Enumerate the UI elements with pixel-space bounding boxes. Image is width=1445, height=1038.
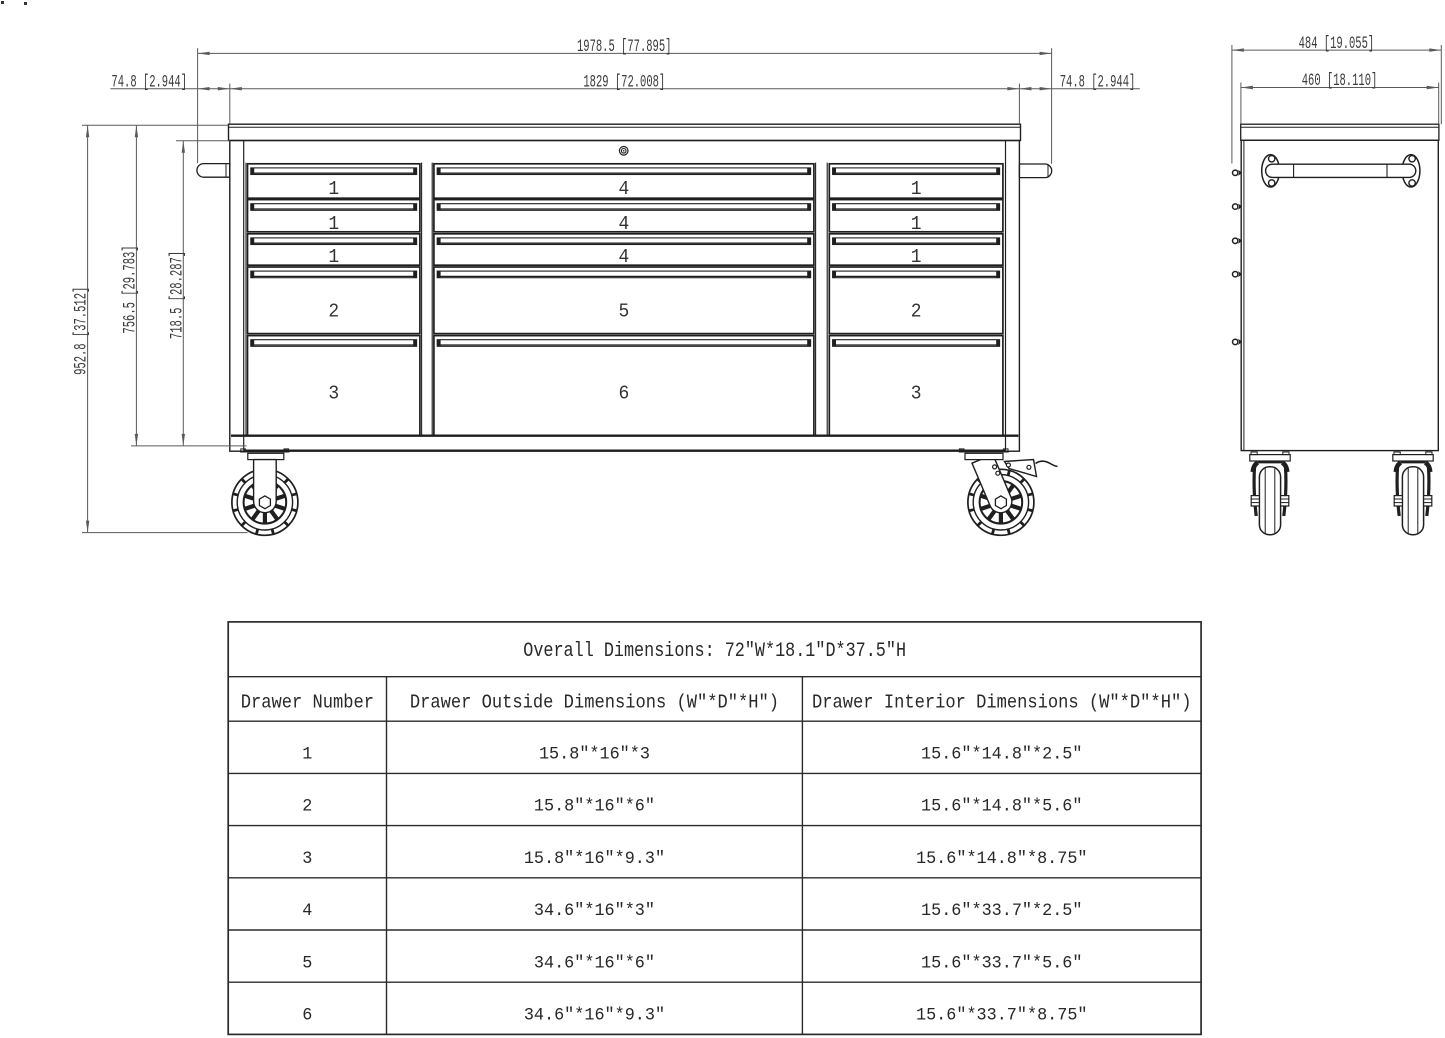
svg-text:1: 1 [328, 245, 339, 268]
svg-text:34.6″*16″*6″: 34.6″*16″*6″ [534, 953, 655, 974]
svg-text:1: 1 [911, 245, 922, 268]
svg-text:15.6″*33.7″*8.75″: 15.6″*33.7″*8.75″ [916, 1005, 1088, 1026]
svg-text:15.6″*14.8″*5.6″: 15.6″*14.8″*5.6″ [921, 796, 1082, 817]
svg-text:3: 3 [328, 382, 339, 405]
svg-text:Drawer Number: Drawer Number [241, 693, 374, 714]
svg-text:6: 6 [302, 1005, 312, 1026]
svg-text:15.8″*16″*3: 15.8″*16″*3 [539, 744, 650, 765]
svg-text:460 [18.110]: 460 [18.110] [1302, 71, 1378, 90]
svg-text:1: 1 [302, 744, 312, 765]
svg-text:2: 2 [302, 796, 312, 817]
svg-text:1: 1 [911, 177, 922, 200]
svg-text:6: 6 [619, 382, 630, 405]
svg-text:1: 1 [328, 212, 339, 235]
svg-text:3: 3 [911, 382, 922, 405]
svg-text:5: 5 [302, 953, 312, 974]
svg-text:4: 4 [619, 212, 630, 235]
svg-text:1: 1 [328, 177, 339, 200]
svg-text:718.5 [28.287]: 718.5 [28.287] [168, 251, 187, 339]
svg-text:2: 2 [328, 300, 339, 323]
svg-text:Drawer Outside Dimensions (W″*: Drawer Outside Dimensions (W″*D″*H″) [410, 693, 779, 714]
svg-text:74.8 [2.944]: 74.8 [2.944] [1060, 73, 1136, 92]
svg-text:1829 [72.008]: 1829 [72.008] [583, 73, 665, 92]
svg-text:Drawer Interior Dimensions (W″: Drawer Interior Dimensions (W″*D″*H″) [812, 693, 1191, 714]
svg-text:4: 4 [619, 177, 630, 200]
svg-text:2: 2 [911, 300, 922, 323]
svg-text:4: 4 [619, 245, 630, 268]
svg-text:5: 5 [619, 300, 630, 323]
svg-text:952.8 [37.512]: 952.8 [37.512] [72, 287, 91, 375]
svg-text:Overall Dimensions: 72″W*18.1″: Overall Dimensions: 72″W*18.1″D*37.5″H [523, 640, 906, 663]
svg-text:15.6″*14.8″*8.75″: 15.6″*14.8″*8.75″ [916, 848, 1088, 869]
svg-text:15.6″*14.8″*2.5″: 15.6″*14.8″*2.5″ [921, 744, 1082, 765]
svg-text:1: 1 [911, 212, 922, 235]
svg-text:34.6″*16″*9.3″: 34.6″*16″*9.3″ [524, 1005, 665, 1026]
svg-text:15.6″*33.7″*5.6″: 15.6″*33.7″*5.6″ [921, 953, 1082, 974]
svg-text:74.8 [2.944]: 74.8 [2.944] [111, 73, 187, 92]
svg-text:484 [19.055]: 484 [19.055] [1299, 34, 1375, 53]
svg-text:15.8″*16″*6″: 15.8″*16″*6″ [534, 796, 655, 817]
svg-text:3: 3 [302, 848, 312, 869]
svg-text:756.5 [29.783]: 756.5 [29.783] [121, 245, 140, 333]
svg-text:15.8″*16″*9.3″: 15.8″*16″*9.3″ [524, 848, 665, 869]
svg-text:34.6″*16″*3″: 34.6″*16″*3″ [534, 901, 655, 922]
svg-text:1978.5 [77.895]: 1978.5 [77.895] [577, 38, 671, 57]
svg-text:15.6″*33.7″*2.5″: 15.6″*33.7″*2.5″ [921, 901, 1082, 922]
svg-text:4: 4 [302, 901, 312, 922]
